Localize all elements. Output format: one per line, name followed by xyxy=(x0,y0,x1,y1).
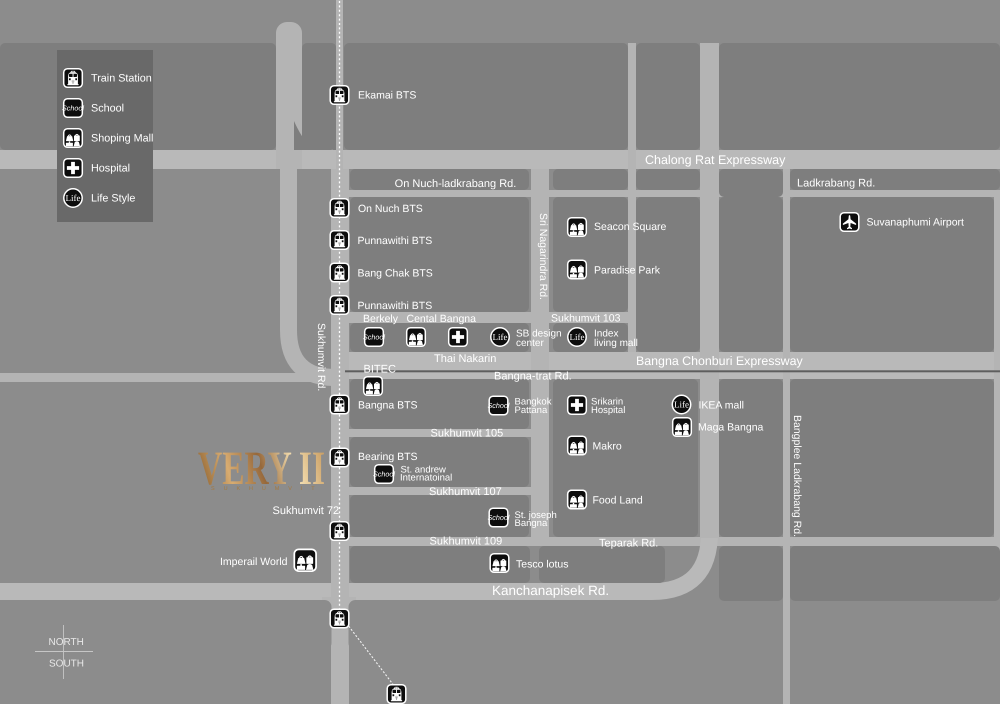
svg-text:Bangna: Bangna xyxy=(515,518,548,529)
svg-text:NORTH: NORTH xyxy=(49,637,84,648)
svg-text:Punnawithi BTS: Punnawithi BTS xyxy=(358,235,433,247)
svg-text:Sukhumvit 105: Sukhumvit 105 xyxy=(431,428,504,440)
svg-text:Life Style: Life Style xyxy=(91,192,135,204)
svg-text:Bangna BTS: Bangna BTS xyxy=(358,399,418,411)
svg-text:Ladkrabang Rd.: Ladkrabang Rd. xyxy=(797,178,875,190)
svg-text:On Nuch BTS: On Nuch BTS xyxy=(358,203,423,215)
svg-text:Pattana: Pattana xyxy=(515,405,548,416)
svg-text:Punnawithi BTS: Punnawithi BTS xyxy=(358,300,433,312)
svg-text:Teparak Rd.: Teparak Rd. xyxy=(599,538,658,550)
svg-text:Bangna Chonburi Expressway: Bangna Chonburi Expressway xyxy=(636,354,803,368)
svg-text:BITEC: BITEC xyxy=(364,364,396,376)
svg-text:Sri Nagarindra Rd.: Sri Nagarindra Rd. xyxy=(537,213,549,300)
svg-text:Thai Nakarin: Thai Nakarin xyxy=(434,353,496,365)
svg-text:Bangplee Ladkrabang Rd.: Bangplee Ladkrabang Rd. xyxy=(791,415,803,537)
svg-text:Kanchanapisek Rd.: Kanchanapisek Rd. xyxy=(492,583,609,598)
svg-text:Sukhumvit Rd.: Sukhumvit Rd. xyxy=(315,323,327,391)
svg-text:Bangna-trat Rd.: Bangna-trat Rd. xyxy=(494,371,572,383)
svg-text:Shoping Mall: Shoping Mall xyxy=(91,132,153,144)
svg-text:living mall: living mall xyxy=(594,338,638,349)
svg-text:Sukhumvit 107: Sukhumvit 107 xyxy=(429,486,502,498)
svg-text:Paradise Park: Paradise Park xyxy=(594,264,661,276)
svg-text:SUKHUMVIT: SUKHUMVIT xyxy=(211,486,324,492)
svg-text:Seacon Square: Seacon Square xyxy=(594,221,667,233)
svg-text:Food Land: Food Land xyxy=(593,494,643,506)
svg-text:Hospital: Hospital xyxy=(591,405,625,416)
svg-text:Tesco lotus: Tesco lotus xyxy=(516,558,569,570)
svg-text:Imperail World: Imperail World xyxy=(220,556,288,568)
svg-text:Sukhumvit 72: Sukhumvit 72 xyxy=(273,505,340,517)
svg-text:Sukhumvit 109: Sukhumvit 109 xyxy=(430,536,503,548)
svg-text:Bearing BTS: Bearing BTS xyxy=(358,451,418,463)
svg-text:On Nuch-ladkrabang Rd.: On Nuch-ladkrabang Rd. xyxy=(395,178,517,190)
svg-text:Chalong Rat Expressway: Chalong Rat Expressway xyxy=(645,153,786,167)
svg-text:Makro: Makro xyxy=(593,440,622,452)
svg-text:Train Station: Train Station xyxy=(91,72,152,84)
svg-text:IKEA mall: IKEA mall xyxy=(699,399,745,411)
svg-text:Sukhumvit 103: Sukhumvit 103 xyxy=(551,312,621,324)
svg-text:Suvanaphumi Airport: Suvanaphumi Airport xyxy=(867,216,965,228)
svg-text:Maga Bangna: Maga Bangna xyxy=(698,421,764,433)
svg-text:Bang Chak BTS: Bang Chak BTS xyxy=(358,267,433,279)
svg-text:SOUTH: SOUTH xyxy=(49,659,84,670)
svg-text:Hospital: Hospital xyxy=(91,162,130,174)
svg-text:Internatoinal: Internatoinal xyxy=(400,472,452,483)
svg-text:center: center xyxy=(516,338,544,349)
svg-text:Cental Bangna: Cental Bangna xyxy=(407,313,477,325)
svg-text:School: School xyxy=(91,102,124,114)
svg-text:Berkely: Berkely xyxy=(363,313,399,325)
svg-text:Ekamai BTS: Ekamai BTS xyxy=(358,89,416,101)
